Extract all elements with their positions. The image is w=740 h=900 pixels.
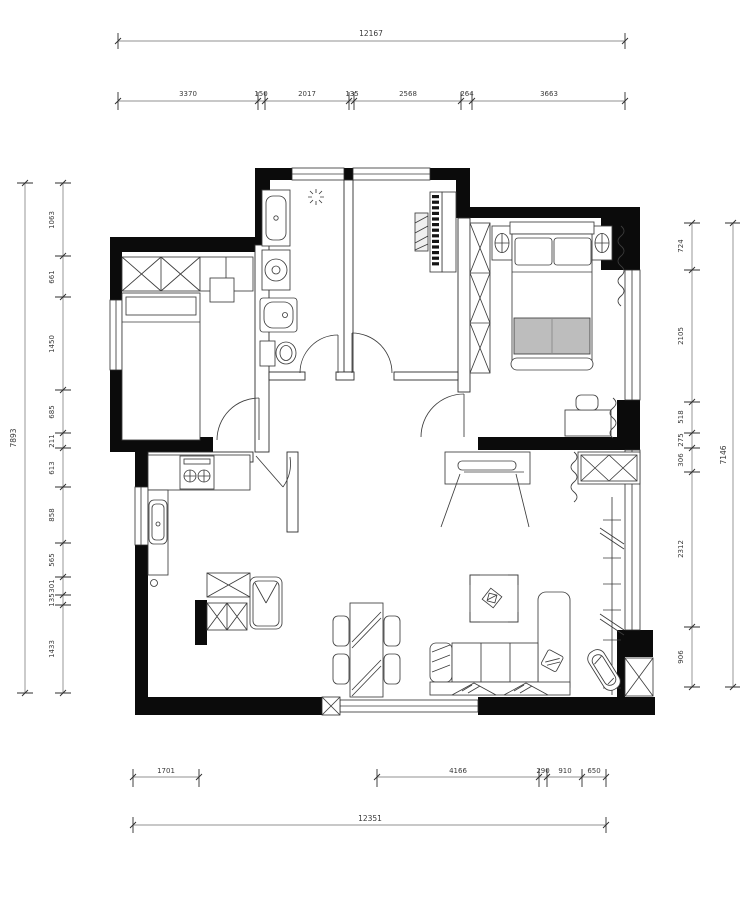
window <box>110 300 122 370</box>
dim-right-total: 7146 <box>719 445 728 464</box>
wardrobe <box>470 223 490 373</box>
doors <box>217 333 464 487</box>
dim-label: 661 <box>48 270 56 283</box>
dim-label: 3370 <box>179 90 197 98</box>
dim-label: 2105 <box>677 327 685 345</box>
floor-drain <box>151 580 158 587</box>
double-bed <box>510 222 594 370</box>
dim-left-outer: 7893 <box>9 180 33 696</box>
window <box>353 168 430 180</box>
dim-label: 275 <box>677 433 685 446</box>
bedside-table <box>210 278 234 302</box>
dim-label: 906 <box>677 650 685 664</box>
dim-label: 2568 <box>399 90 417 98</box>
door-piano-room <box>352 333 392 373</box>
window <box>340 700 478 712</box>
sink <box>262 190 290 246</box>
tv-cabinet <box>441 452 530 527</box>
dim-label: 1701 <box>157 767 175 775</box>
door-bedroom-left <box>217 398 259 440</box>
sideboard <box>578 452 640 484</box>
ceiling-light-icon <box>308 189 324 205</box>
dim-left-total: 7893 <box>9 428 18 447</box>
stove <box>180 456 214 489</box>
tv <box>458 461 516 470</box>
dressing-table <box>565 395 611 436</box>
bathtub <box>260 298 297 332</box>
piano <box>430 192 456 272</box>
dining-chair <box>333 616 349 646</box>
washing-machine <box>262 250 290 290</box>
floor-plan-canvas: 12167 3370 150 2017 135 2568 264 3663 17… <box>0 0 740 900</box>
curtain <box>571 452 577 502</box>
window <box>625 270 640 400</box>
window <box>135 487 148 545</box>
bathroom <box>260 189 324 366</box>
dim-label: 264 <box>460 90 474 98</box>
nightstand <box>492 226 512 260</box>
master-bedroom <box>470 222 624 438</box>
dim-right-inner: 724 2105 518 275 306 2312 906 <box>677 220 700 690</box>
window <box>292 168 344 180</box>
kitchen <box>148 455 282 630</box>
dining-chair <box>384 654 400 684</box>
dim-label: 290 <box>536 767 549 775</box>
dim-label: 1063 <box>48 211 56 229</box>
dim-label: 518 <box>677 410 685 423</box>
door-bathroom <box>300 335 338 373</box>
toilet <box>260 341 296 366</box>
bedroom-left <box>122 257 253 440</box>
dim-label: 685 <box>48 405 56 418</box>
coffee-table <box>470 575 518 622</box>
dining-table <box>350 603 383 697</box>
dim-label: 724 <box>677 239 685 253</box>
living-room <box>430 452 640 695</box>
dining-area <box>333 603 400 697</box>
dim-top-inner: 3370 150 2017 135 2568 264 3663 <box>115 90 628 110</box>
dim-label: 910 <box>558 767 571 775</box>
dim-label: 2017 <box>298 90 316 98</box>
pantry-cabinet <box>207 603 247 630</box>
dim-label: 150 <box>254 90 267 98</box>
dim-label: 1450 <box>48 335 56 353</box>
dining-chair <box>384 616 400 646</box>
dim-bottom-inner: 1701 4166 290 910 650 <box>130 767 609 787</box>
dim-label: 211 <box>48 434 56 447</box>
dim-top-total: 12167 <box>359 29 383 38</box>
stool <box>576 395 598 410</box>
fridge <box>250 577 282 629</box>
dim-bottom-outer: 12351 <box>130 814 609 833</box>
door-kitchen <box>256 456 290 487</box>
dim-top-outer: 12167 <box>115 29 628 49</box>
nightstand <box>592 226 612 260</box>
dim-right-outer: 7146 <box>719 220 740 690</box>
dim-label: 2312 <box>677 540 685 558</box>
dim-label: 565 <box>48 553 56 566</box>
single-bed <box>122 293 200 440</box>
shaft-marker <box>322 697 340 715</box>
piano-bench <box>415 213 428 251</box>
door-master <box>421 394 464 437</box>
dim-label: 613 <box>48 461 56 474</box>
dining-chair <box>333 654 349 684</box>
dim-label: 135 <box>345 90 358 98</box>
dim-left-inner: 1063 661 1450 685 211 613 858 565 301 13… <box>48 180 71 696</box>
floor-plan-page: 12167 3370 150 2017 135 2568 264 3663 17… <box>0 0 740 900</box>
dim-label: 301 <box>48 579 56 592</box>
pantry-cabinet <box>207 573 250 597</box>
piano-room <box>415 192 456 272</box>
corner-cabinet <box>625 658 653 696</box>
dim-label: 4166 <box>449 767 467 775</box>
dim-bottom-total: 12351 <box>358 814 382 823</box>
dim-label: 3663 <box>540 90 558 98</box>
dim-label: 135 <box>48 593 56 606</box>
dim-label: 306 <box>677 453 685 467</box>
dim-label: 650 <box>587 767 600 775</box>
kitchen-sink <box>149 500 167 544</box>
dim-label: 858 <box>48 508 56 521</box>
dim-label: 1433 <box>48 640 56 658</box>
